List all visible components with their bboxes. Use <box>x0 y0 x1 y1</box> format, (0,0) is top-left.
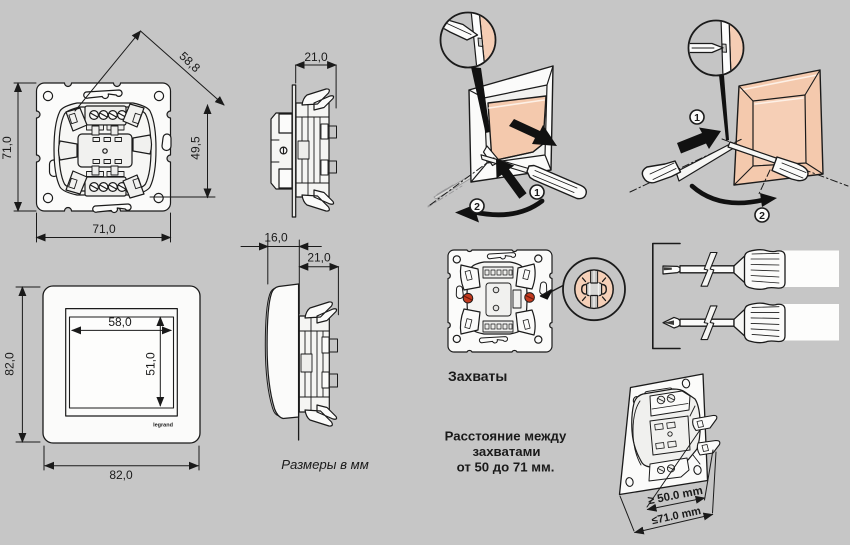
svg-text:21,0: 21,0 <box>307 251 331 265</box>
svg-text:51,0: 51,0 <box>144 352 158 376</box>
svg-text:71,0: 71,0 <box>92 222 116 236</box>
svg-text:71,0: 71,0 <box>0 136 14 160</box>
svg-text:Размеры в мм: Размеры в мм <box>281 457 369 472</box>
svg-text:21,0: 21,0 <box>304 50 328 64</box>
svg-text:16,0: 16,0 <box>264 231 288 245</box>
svg-text:от 50 до 71 мм.: от 50 до 71 мм. <box>457 460 555 475</box>
svg-text:2: 2 <box>474 201 480 213</box>
svg-text:захватами: захватами <box>473 444 541 459</box>
svg-text:82,0: 82,0 <box>109 468 133 482</box>
svg-text:82,0: 82,0 <box>3 352 17 376</box>
svg-text:1: 1 <box>534 187 540 199</box>
svg-text:Расстояние между: Расстояние между <box>445 429 567 444</box>
svg-text:58,0: 58,0 <box>108 315 132 329</box>
svg-text:49,5: 49,5 <box>189 136 203 160</box>
svg-text:1: 1 <box>694 112 700 124</box>
svg-text:Захваты: Захваты <box>448 368 507 384</box>
svg-text:legrand: legrand <box>153 423 173 429</box>
svg-text:2: 2 <box>759 210 765 222</box>
